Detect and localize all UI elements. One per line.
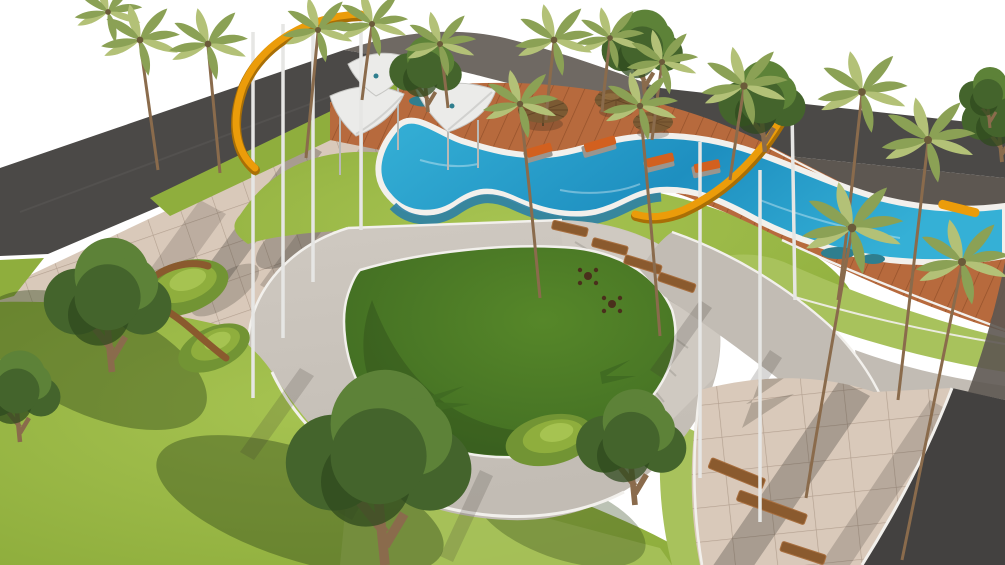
park-render-canvas — [0, 0, 1005, 565]
sail-vent-1 — [374, 74, 379, 79]
park-render: Aerial 3D rendering of a park landscape … — [0, 0, 1005, 565]
sail-vent-2 — [450, 104, 455, 109]
